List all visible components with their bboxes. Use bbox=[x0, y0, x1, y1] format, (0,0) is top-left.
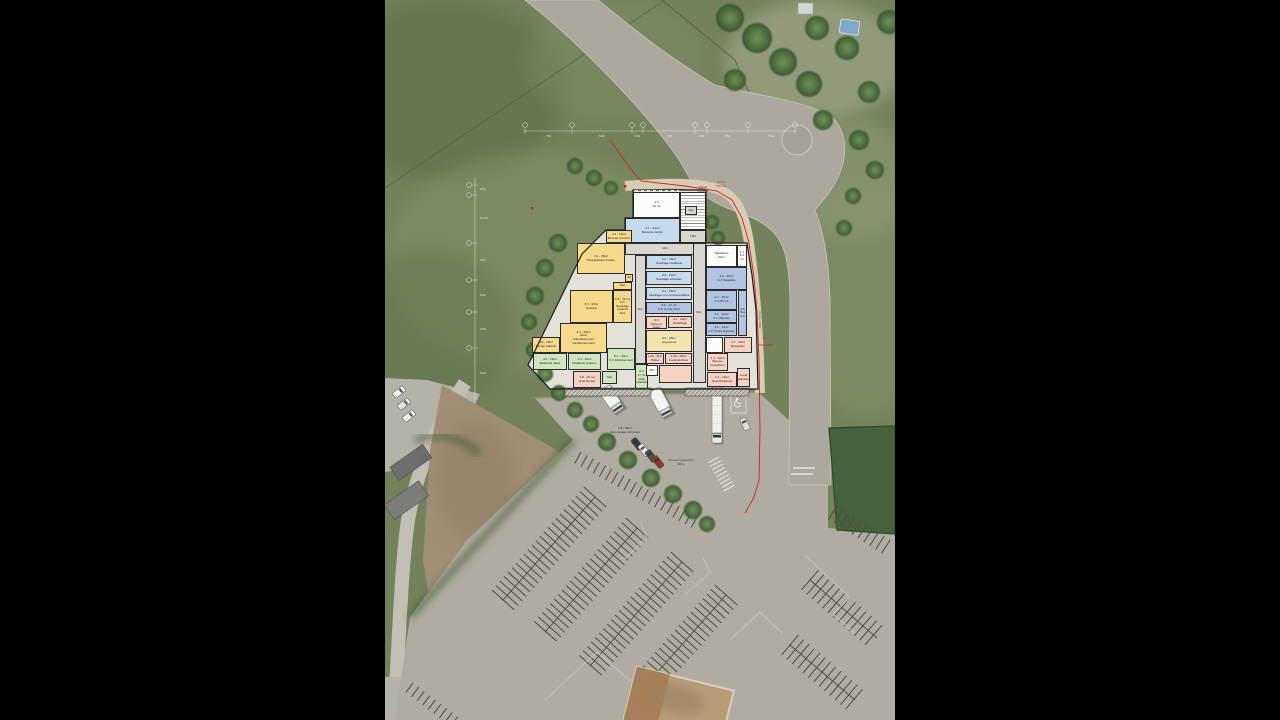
building-outline bbox=[528, 190, 758, 389]
access-marker-2 bbox=[531, 207, 533, 209]
aerial-plan-canvas: 7.505.302.507.502.507.507.502.5012.009.0… bbox=[385, 0, 895, 720]
site-plan-page: 7.505.302.507.502.507.507.502.5012.009.0… bbox=[0, 0, 1280, 720]
access-marker bbox=[624, 185, 626, 187]
plan-overlay-layer bbox=[385, 0, 895, 720]
